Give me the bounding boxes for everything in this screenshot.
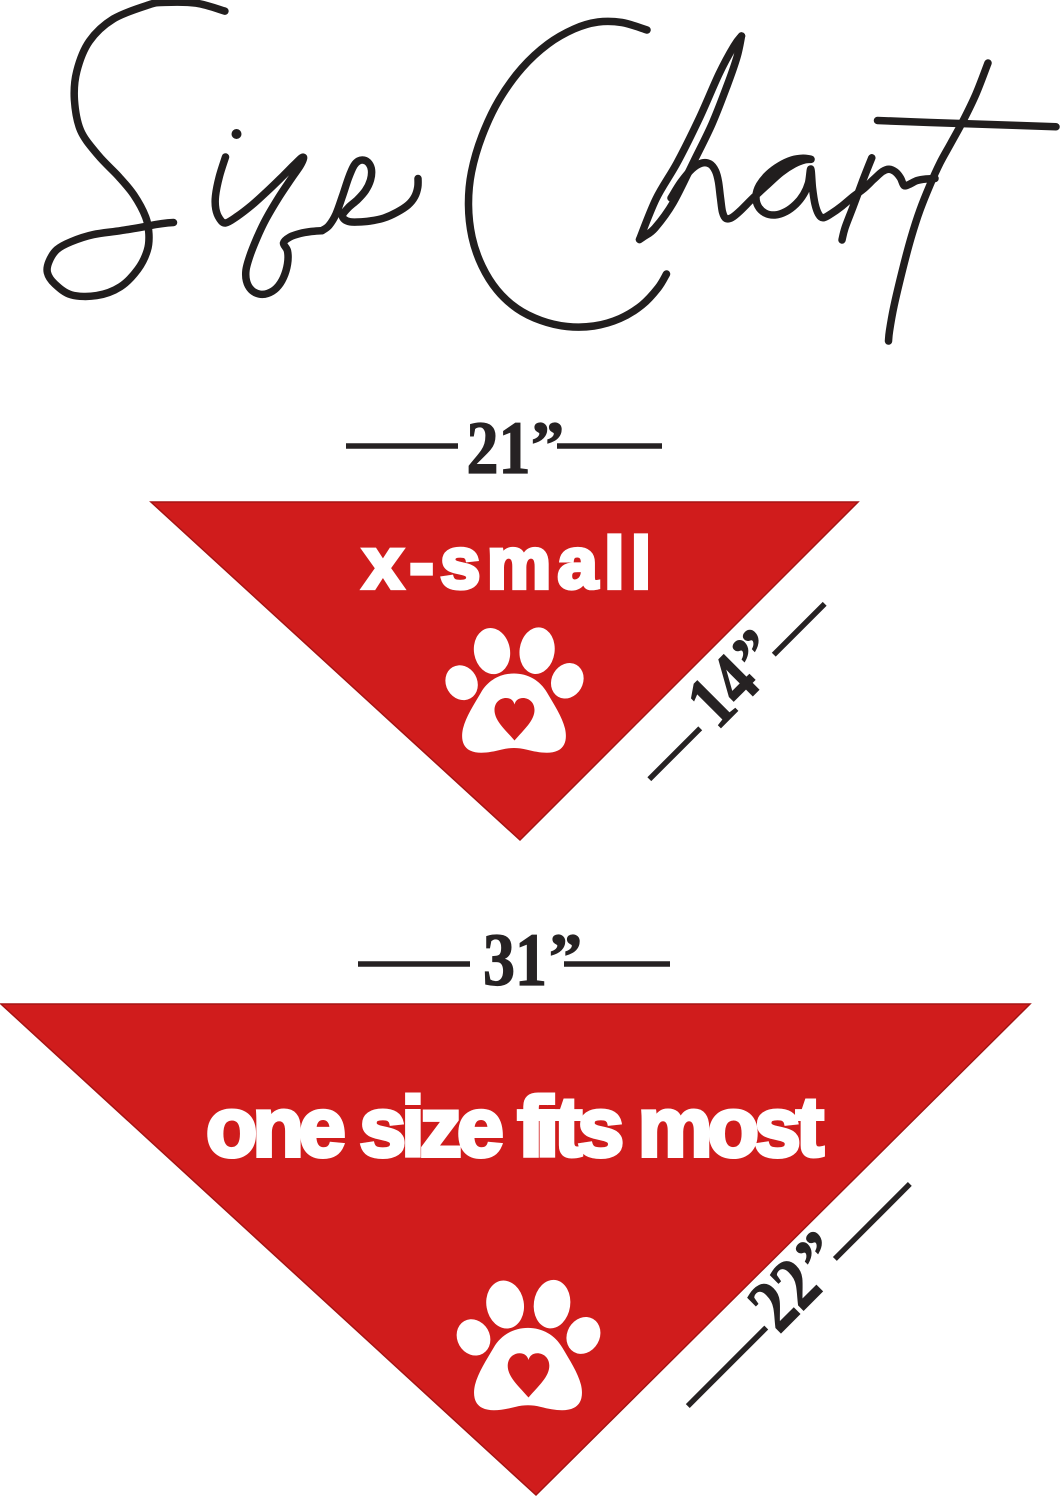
svg-text:”: ” [549, 921, 582, 994]
svg-text:21: 21 [467, 407, 531, 490]
svg-text:31: 31 [483, 919, 547, 1002]
svg-text:one size f‌its most: one size f‌its most [206, 1080, 824, 1174]
